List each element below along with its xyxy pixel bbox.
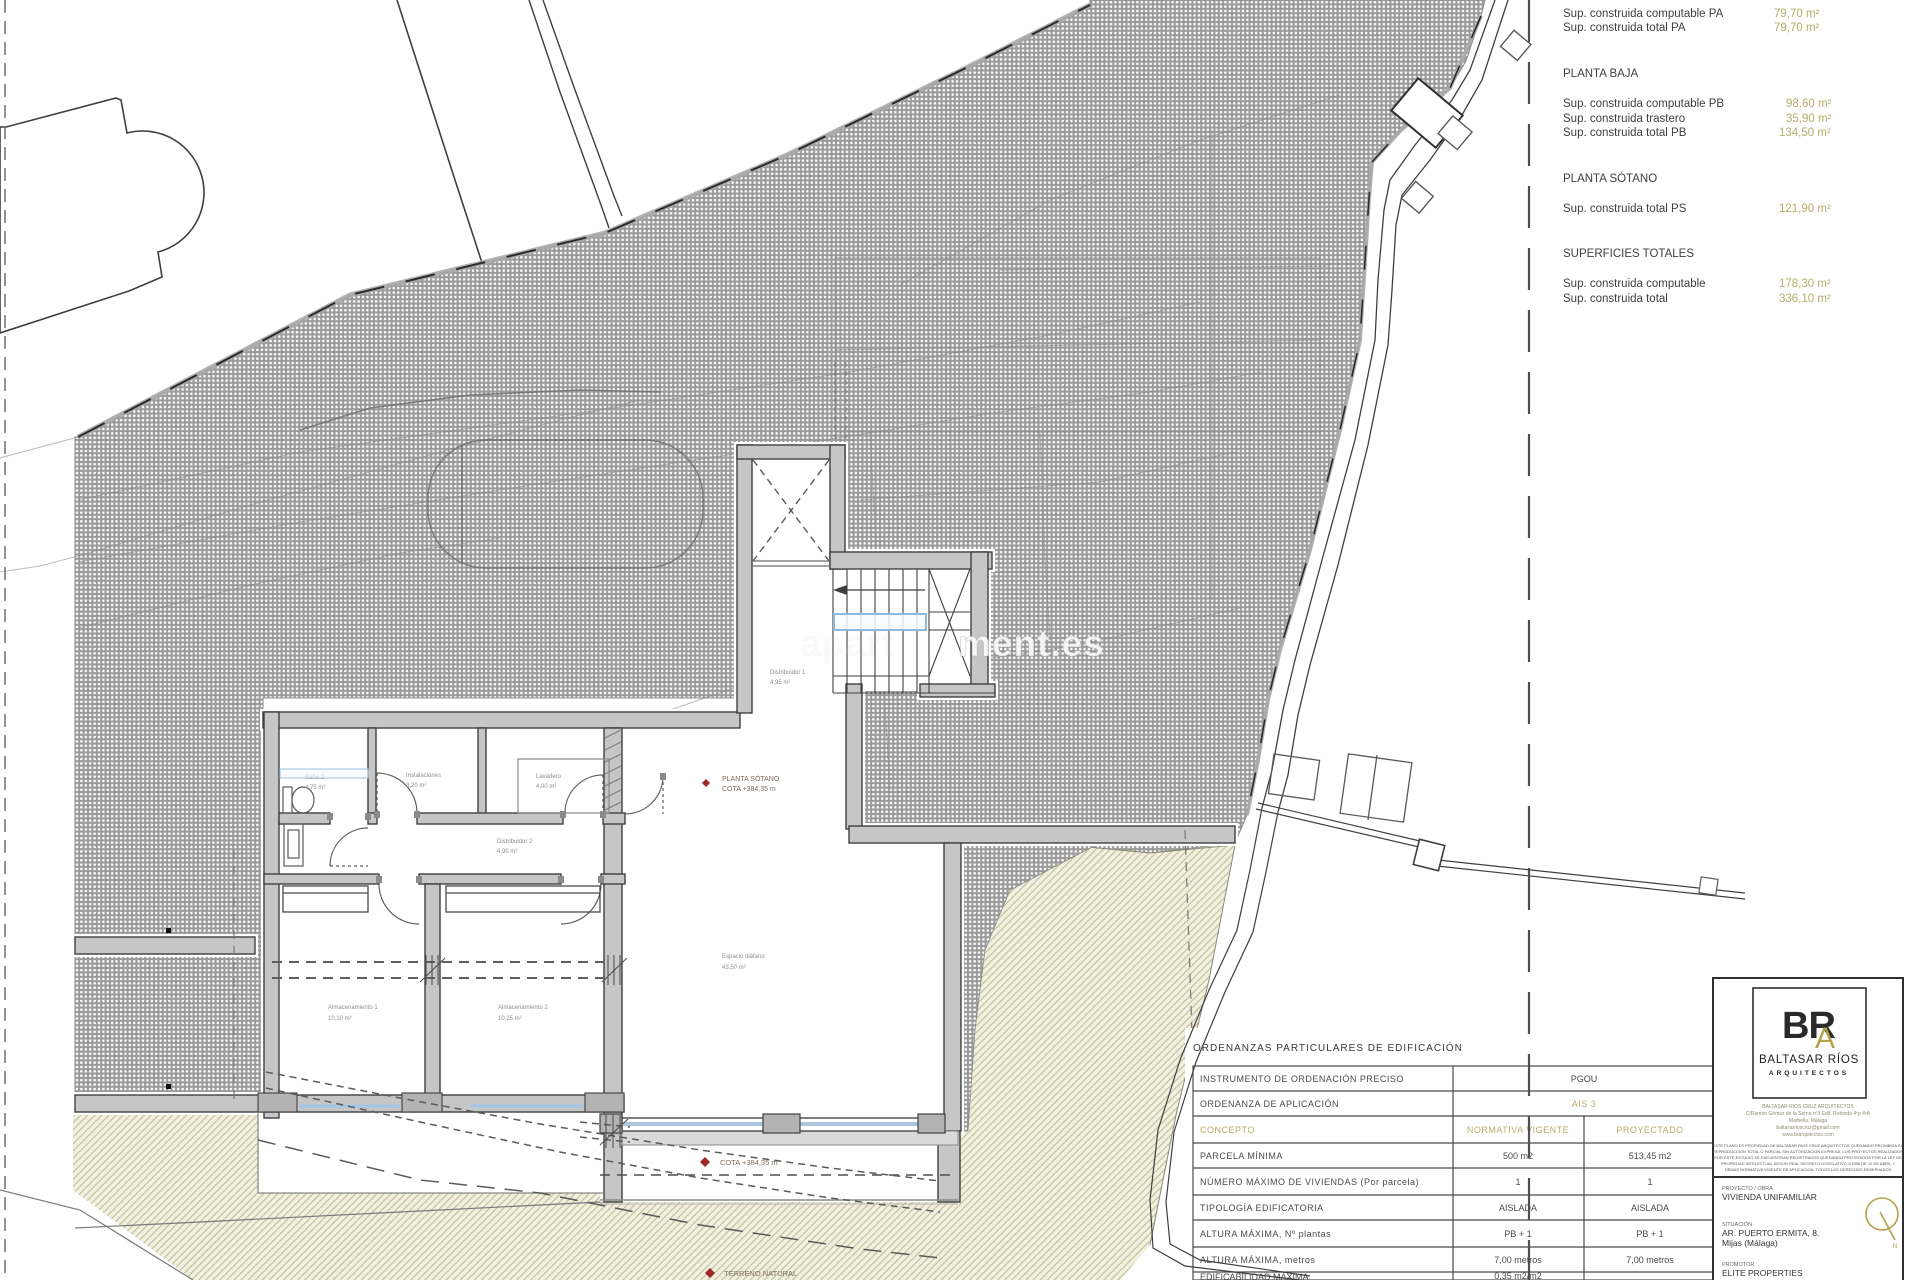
svg-text:ment.es: ment.es [958, 623, 1105, 664]
svg-text:Sup. construida computable: Sup. construida computable [1563, 278, 1706, 290]
svg-text:336,10 m²: 336,10 m² [1779, 293, 1831, 305]
svg-text:4,90 m²: 4,90 m² [497, 849, 517, 855]
svg-text:COTA +384,35 m: COTA +384,35 m [722, 786, 776, 793]
svg-text:Espacio diáfano: Espacio diáfano [722, 954, 765, 960]
svg-text:Distribuidor 2: Distribuidor 2 [497, 839, 533, 845]
svg-text:Almacenamiento 2: Almacenamiento 2 [498, 1005, 548, 1011]
svg-text:POR ESTE ESTUDIO SE ENCUENTRAN: POR ESTE ESTUDIO SE ENCUENTRAN REGISTRAD… [1714, 1155, 1902, 1160]
svg-text:PB + 1: PB + 1 [1636, 1229, 1663, 1239]
svg-text:PLANTA BAJA: PLANTA BAJA [1563, 68, 1639, 80]
svg-text:7,00 metros: 7,00 metros [1494, 1255, 1542, 1265]
svg-text:ALTURA MÁXIMA, Nº plantas: ALTURA MÁXIMA, Nº plantas [1200, 1229, 1331, 1239]
svg-text:BALTASAR RÍOS: BALTASAR RÍOS [1759, 1053, 1859, 1066]
svg-text:ALTURA MÁXIMA, metros: ALTURA MÁXIMA, metros [1200, 1255, 1315, 1265]
svg-text:AISLADA: AISLADA [1499, 1203, 1537, 1213]
svg-text:Almacenamiento 1: Almacenamiento 1 [328, 1005, 378, 1011]
svg-text:7,00 metros: 7,00 metros [1626, 1255, 1674, 1265]
svg-text:43,50 m²: 43,50 m² [722, 965, 746, 971]
svg-text:PROPIEDAD INTELECTUAL SEGUN RE: PROPIEDAD INTELECTUAL SEGUN REAL DECRETO… [1721, 1161, 1895, 1166]
svg-text:NORMATIVA VIGENTE: NORMATIVA VIGENTE [1467, 1125, 1569, 1135]
svg-text:SITUACIÓN: SITUACIÓN [1722, 1221, 1752, 1228]
svg-text:PLANTA SÓTANO: PLANTA SÓTANO [1563, 172, 1657, 185]
svg-text:Sup. construida computable PA: Sup. construida computable PA [1563, 8, 1724, 20]
svg-text:AIS 3: AIS 3 [1572, 1099, 1597, 1109]
svg-text:Marbella, Málaga: Marbella, Málaga [1789, 1118, 1828, 1124]
svg-text:Mijas (Málaga): Mijas (Málaga) [1722, 1238, 1778, 1248]
svg-text:ESTE PLANO ES PROPIEDAD DE BAL: ESTE PLANO ES PROPIEDAD DE BALTASAR RIOS… [1713, 1143, 1904, 1148]
svg-text:N: N [1893, 1244, 1897, 1250]
svg-text:121,90 m²: 121,90 m² [1779, 203, 1831, 215]
svg-text:10,10 m²: 10,10 m² [328, 1016, 352, 1022]
svg-text:COTA +384,35 m: COTA +384,35 m [720, 1158, 778, 1167]
svg-text:ARQUITECTOS: ARQUITECTOS [1769, 1070, 1849, 1077]
svg-text:BALTASAR RIOS CRUZ ARQUITECTO: BALTASAR RIOS CRUZ ARQUITECTOS [1762, 1104, 1854, 1110]
svg-text:PARCELA MÍNIMA: PARCELA MÍNIMA [1200, 1151, 1283, 1161]
svg-text:baltasarrioscruz@gmail.com: baltasarrioscruz@gmail.com [1776, 1125, 1839, 1131]
svg-text:ORDENANZA DE APLICACIÓN: ORDENANZA DE APLICACIÓN [1200, 1099, 1339, 1109]
svg-text:DEMAS NORMATIVA VIGENTE DE APL: DEMAS NORMATIVA VIGENTE DE APLICACION. T… [1725, 1167, 1892, 1172]
svg-text:www.brarquitectos.com: www.brarquitectos.com [1782, 1132, 1834, 1138]
svg-text:SUPERFICIES TOTALES: SUPERFICIES TOTALES [1563, 248, 1694, 260]
svg-text:TERRENO NATURAL: TERRENO NATURAL [724, 1269, 797, 1278]
svg-text:1: 1 [1647, 1177, 1652, 1187]
svg-text:134,50 m²: 134,50 m² [1779, 127, 1831, 139]
svg-text:ELITE PROPERTIES: ELITE PROPERTIES [1722, 1268, 1803, 1278]
svg-text:35,90 m²: 35,90 m² [1786, 113, 1832, 125]
svg-text:Instalaciones: Instalaciones [406, 773, 441, 779]
svg-text:AR. PUERTO ERMITA, 8.: AR. PUERTO ERMITA, 8. [1722, 1228, 1819, 1238]
svg-text:CONCEPTO: CONCEPTO [1200, 1125, 1255, 1135]
svg-text:79,70 m²: 79,70 m² [1774, 8, 1820, 20]
svg-text:4,00 m²: 4,00 m² [536, 784, 556, 790]
svg-text:Sup. construida total PS: Sup. construida total PS [1563, 203, 1687, 215]
svg-text:C/Ramón Gómez de la Serna nº3: C/Ramón Gómez de la Serna nº3 Edif. Roto… [1746, 1111, 1871, 1117]
svg-text:PB + 1: PB + 1 [1504, 1229, 1531, 1239]
svg-text:A: A [1815, 1022, 1835, 1055]
svg-text:0,35 m2/m2: 0,35 m2/m2 [1494, 1271, 1542, 1280]
svg-text:98,60 m²: 98,60 m² [1786, 98, 1832, 110]
svg-text:3,20 m²: 3,20 m² [406, 783, 426, 789]
svg-text:Lavadero: Lavadero [536, 774, 562, 780]
svg-text:513,45 m2: 513,45 m2 [1629, 1151, 1672, 1161]
svg-text:4,95 m²: 4,95 m² [770, 680, 790, 686]
svg-text:Sup. construida total: Sup. construida total [1563, 293, 1668, 305]
svg-text:AISLADA: AISLADA [1631, 1203, 1669, 1213]
svg-text:PLANTA SÓTANO: PLANTA SÓTANO [722, 774, 780, 783]
svg-text:NÚMERO MÁXIMO DE VIVIENDAS (Po: NÚMERO MÁXIMO DE VIVIENDAS (Por parcela) [1200, 1177, 1419, 1187]
svg-text:Sup. construida computable PB: Sup. construida computable PB [1563, 98, 1724, 110]
svg-text:REPRODUCCION TOTAL O PARCIAL S: REPRODUCCION TOTAL O PARCIAL SIN AUTORIZ… [1713, 1149, 1903, 1154]
svg-text:INSTRUMENTO DE ORDENACIÓN PREC: INSTRUMENTO DE ORDENACIÓN PRECISO [1200, 1074, 1404, 1084]
svg-text:1: 1 [1515, 1177, 1520, 1187]
svg-text:178,30 m²: 178,30 m² [1779, 278, 1831, 290]
svg-text:TIPOLOGÍA EDIFICATORIA: TIPOLOGÍA EDIFICATORIA [1200, 1203, 1324, 1213]
svg-text:ORDENANZAS PARTICULARES DE EDI: ORDENANZAS PARTICULARES DE EDIFICACIÓN [1193, 1041, 1463, 1054]
svg-text:PGOU: PGOU [1571, 1074, 1598, 1084]
svg-text:Sup. construida trastero: Sup. construida trastero [1563, 113, 1685, 125]
svg-text:VIVIENDA UNIFAMILIAR: VIVIENDA UNIFAMILIAR [1722, 1192, 1817, 1202]
svg-text:Distribuidor 1: Distribuidor 1 [770, 670, 806, 676]
svg-text:10,25 m²: 10,25 m² [498, 1016, 522, 1022]
svg-text:4,75 m²: 4,75 m² [305, 785, 325, 791]
svg-text:Sup. construida total PB: Sup. construida total PB [1563, 127, 1687, 139]
svg-text:PROYECTADO: PROYECTADO [1616, 1125, 1683, 1135]
svg-text:79,70 m²: 79,70 m² [1774, 22, 1820, 34]
svg-text:Sup. construida total PA: Sup. construida total PA [1563, 22, 1686, 34]
svg-text:apart: apart [800, 623, 895, 664]
